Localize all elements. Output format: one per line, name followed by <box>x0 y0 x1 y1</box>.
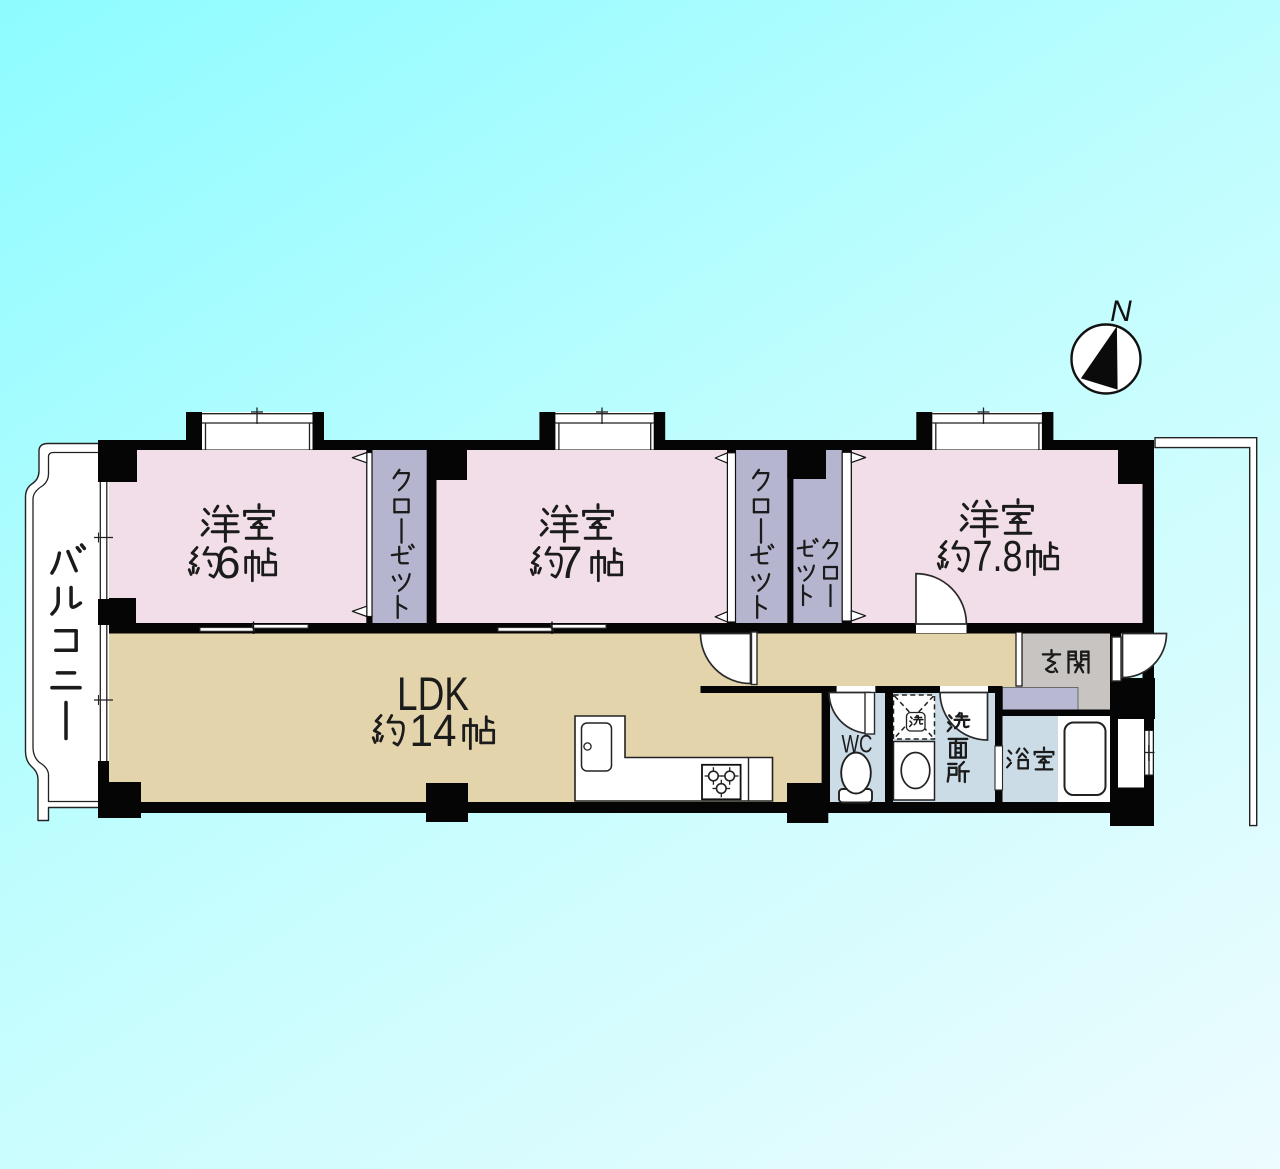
svg-text:14: 14 <box>410 705 457 756</box>
svg-text:7: 7 <box>557 537 582 588</box>
svg-text:7.8: 7.8 <box>973 532 1023 581</box>
svg-text:N: N <box>1110 295 1132 328</box>
svg-text:6: 6 <box>215 537 240 588</box>
svg-text:WC: WC <box>842 731 873 759</box>
